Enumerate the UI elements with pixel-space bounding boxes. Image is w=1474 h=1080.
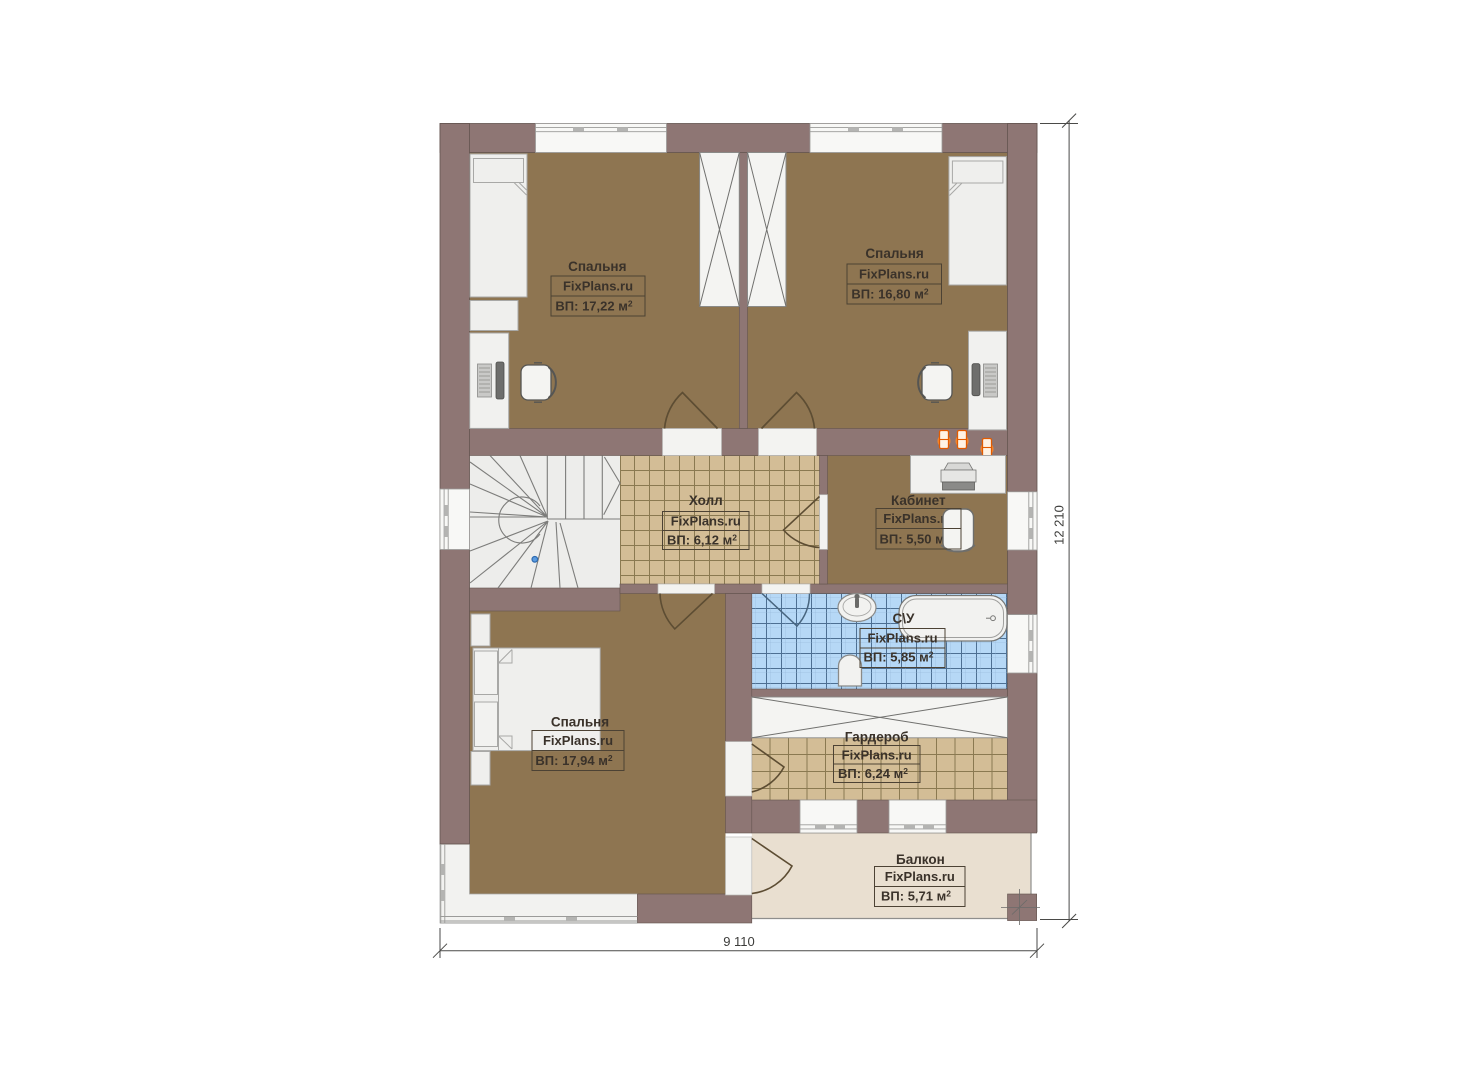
svg-text:Гардероб: Гардероб — [845, 730, 909, 745]
svg-text:Кабинет: Кабинет — [891, 493, 946, 508]
svg-text:ВП: 5,85 м2: ВП: 5,85 м2 — [864, 650, 934, 665]
svg-text:ВП: 5,71 м2: ВП: 5,71 м2 — [881, 889, 951, 904]
svg-text:ВП: 17,22 м2: ВП: 17,22 м2 — [555, 299, 632, 314]
svg-text:FixPlans.ru: FixPlans.ru — [671, 514, 741, 529]
svg-text:ВП: 16,80 м2: ВП: 16,80 м2 — [851, 287, 928, 302]
svg-text:FixPlans.ru: FixPlans.ru — [859, 267, 929, 282]
svg-text:FixPlans.ru: FixPlans.ru — [867, 631, 937, 646]
svg-text:Спальня: Спальня — [568, 259, 626, 274]
svg-text:FixPlans.ru: FixPlans.ru — [543, 733, 613, 748]
svg-text:ВП: 6,24 м2: ВП: 6,24 м2 — [838, 766, 908, 781]
svg-text:С\У: С\У — [893, 611, 916, 626]
svg-text:Холл: Холл — [689, 493, 723, 508]
svg-text:Спальня: Спальня — [551, 715, 609, 730]
svg-text:Спальня: Спальня — [865, 246, 923, 261]
svg-text:9 110: 9 110 — [723, 934, 755, 949]
svg-text:FixPlans.ru: FixPlans.ru — [842, 748, 912, 763]
svg-text:ВП: 5,50 м2: ВП: 5,50 м2 — [880, 532, 950, 547]
svg-text:ВП: 17,94 м2: ВП: 17,94 м2 — [535, 753, 612, 768]
svg-text:FixPlans.ru: FixPlans.ru — [563, 279, 633, 294]
svg-text:12 210: 12 210 — [1052, 505, 1067, 545]
svg-text:Балкон: Балкон — [896, 852, 945, 867]
svg-text:ВП: 6,12 м2: ВП: 6,12 м2 — [667, 533, 737, 548]
svg-text:FixPlans.ru: FixPlans.ru — [885, 869, 955, 884]
